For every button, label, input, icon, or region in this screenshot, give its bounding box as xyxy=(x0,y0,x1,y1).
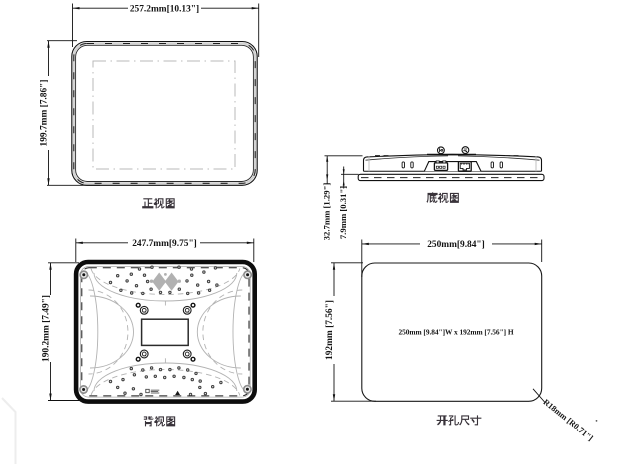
svg-text:250mm[9.84"]: 250mm[9.84"] xyxy=(427,240,485,250)
svg-text:32.7mm [1.29"]: 32.7mm [1.29"] xyxy=(321,183,331,241)
svg-text:190.2mm [7.49"]: 190.2mm [7.49"] xyxy=(42,295,52,362)
svg-text:192mm [7.56"]: 192mm [7.56"] xyxy=(325,300,335,360)
svg-text:247.7mm[9.75"]: 247.7mm[9.75"] xyxy=(132,239,197,249)
svg-text:250mm [9.84"]W x 192mm [7.56"]: 250mm [9.84"]W x 192mm [7.56"] H xyxy=(398,328,513,337)
svg-text:7.9mm [0.31"]: 7.9mm [0.31"] xyxy=(338,186,348,239)
svg-text:257.2mm[10.13"]: 257.2mm[10.13"] xyxy=(130,4,199,14)
svg-text:199.7mm [7.86"]: 199.7mm [7.86"] xyxy=(40,80,50,147)
